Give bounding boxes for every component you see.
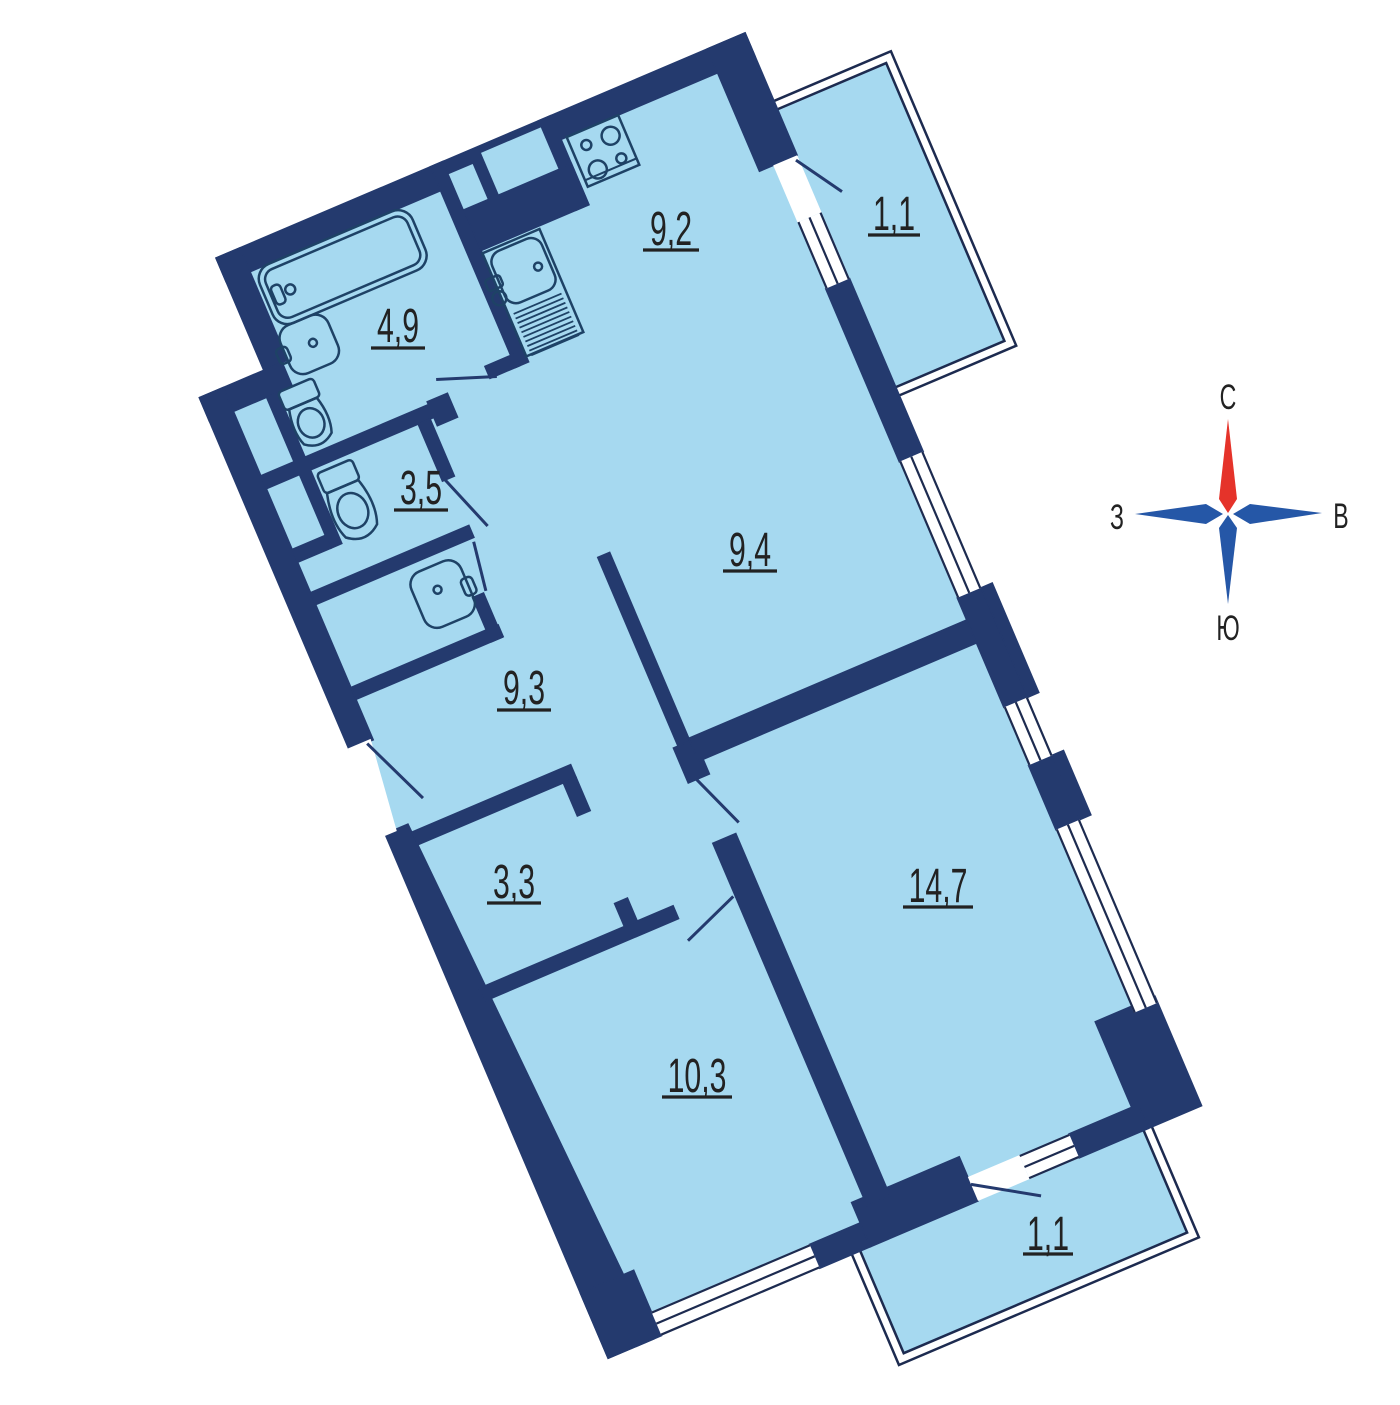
svg-text:10,3: 10,3 [668, 1050, 727, 1103]
svg-text:1,1: 1,1 [873, 188, 915, 241]
svg-text:9,4: 9,4 [729, 524, 771, 577]
svg-text:3,5: 3,5 [400, 462, 442, 515]
svg-text:В: В [1333, 497, 1348, 536]
svg-text:4,9: 4,9 [377, 300, 419, 353]
svg-text:14,7: 14,7 [909, 860, 968, 913]
svg-text:С: С [1220, 378, 1237, 417]
svg-text:9,2: 9,2 [650, 203, 692, 256]
svg-text:9,3: 9,3 [503, 662, 545, 715]
svg-text:3,3: 3,3 [493, 856, 535, 909]
svg-text:Ю: Ю [1216, 609, 1239, 648]
svg-text:З: З [1110, 498, 1124, 537]
